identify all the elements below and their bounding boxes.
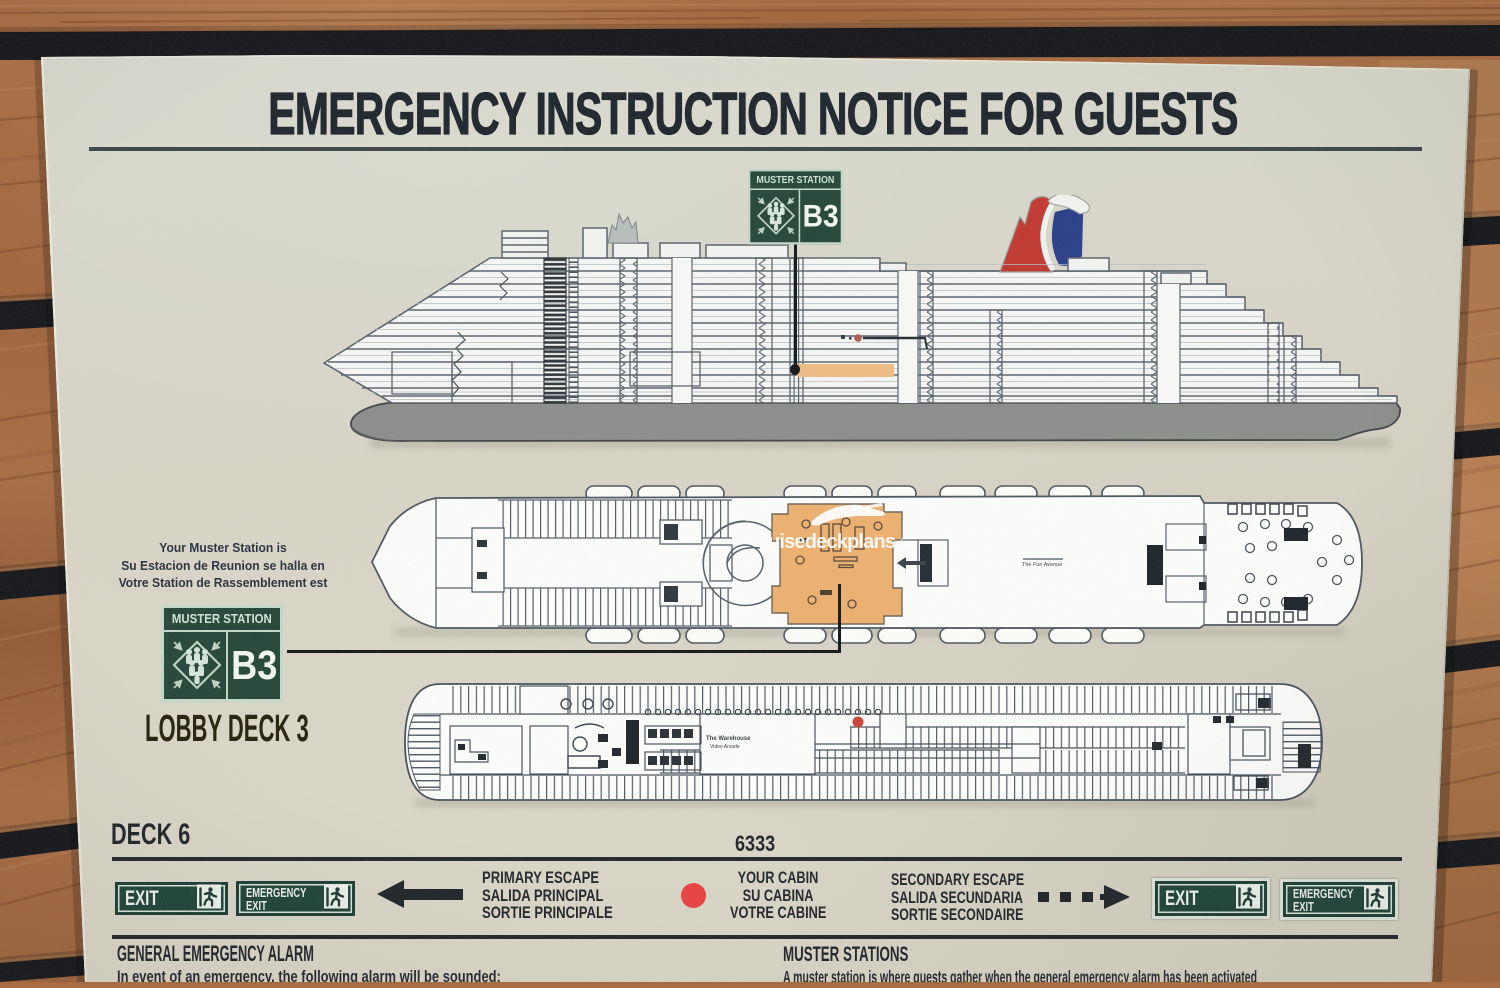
svg-text:Video Arcade: Video Arcade — [710, 744, 740, 750]
svg-text:The Warehouse: The Warehouse — [706, 736, 751, 742]
svg-text:The Fun Avenue: The Fun Avenue — [1022, 562, 1062, 568]
svg-text:ruisedeckplans c: ruisedeckplans c — [761, 531, 911, 553]
